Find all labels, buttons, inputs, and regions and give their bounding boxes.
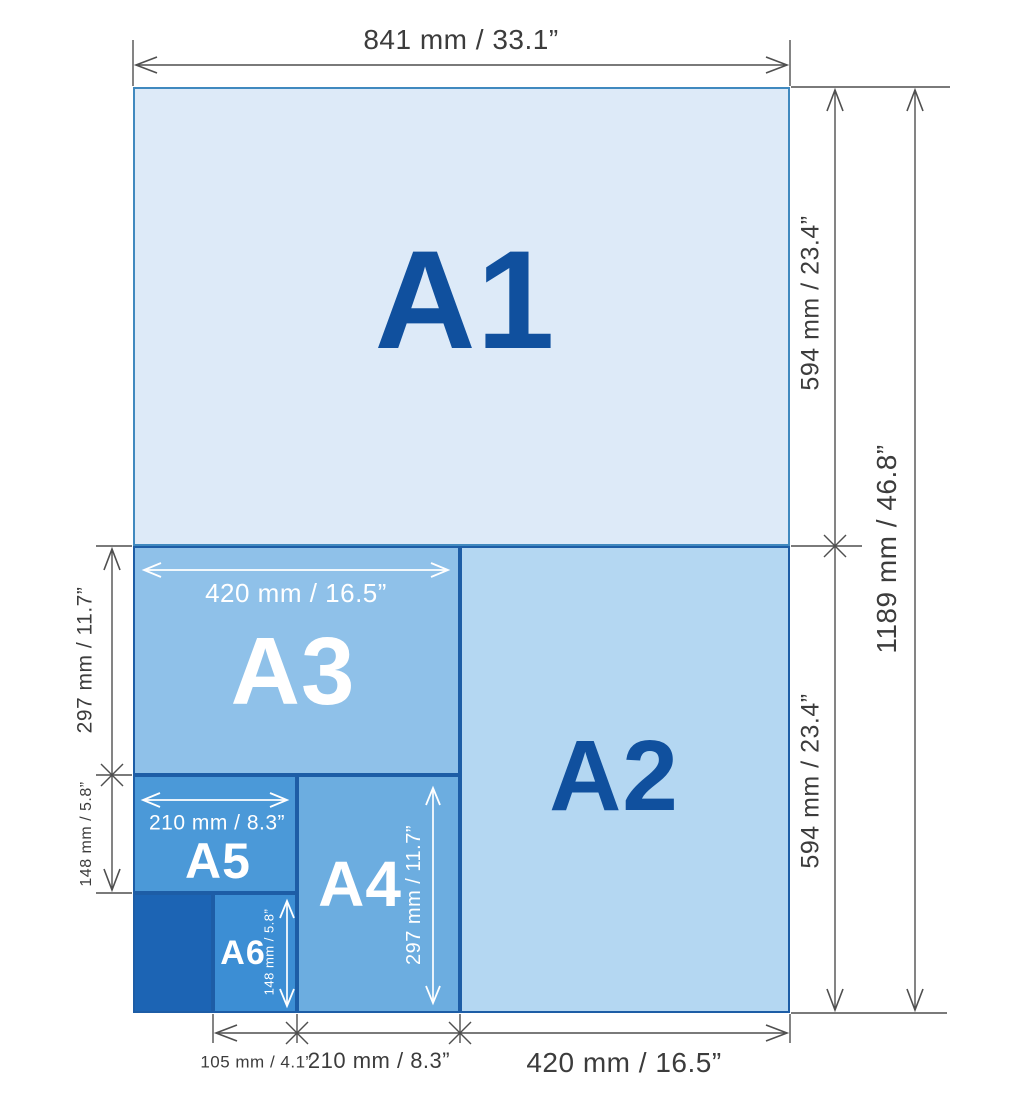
paper-a5-label: A5 — [185, 836, 251, 886]
left-lower-height-label: 148 mm / 5.8” — [79, 781, 95, 886]
bottom-middle-width-label: 210 mm / 8.3” — [308, 1050, 450, 1072]
paper-sizes-diagram: A1 A2 A3 A4 A5 A6 420 mm / 16.5” 210 mm … — [0, 0, 1020, 1098]
paper-a4-label: A4 — [318, 852, 402, 916]
right-lower-height-label: 594 mm / 23.4” — [799, 693, 824, 868]
a5-width-label: 210 mm / 8.3” — [149, 813, 285, 834]
paper-a6-label: A6 — [220, 936, 265, 970]
paper-a1-label: A1 — [375, 230, 556, 370]
paper-small-sizes-square — [133, 893, 213, 1013]
a3-width-label: 420 mm / 16.5” — [205, 580, 387, 606]
right-total-height-label: 1189 mm / 46.8” — [873, 444, 901, 653]
paper-a2-label: A2 — [549, 726, 679, 826]
right-upper-height-label: 594 mm / 23.4” — [799, 215, 824, 390]
top-width-label: 841 mm / 33.1” — [363, 26, 558, 54]
a6-height-label: 148 mm / 5.8” — [263, 909, 276, 996]
left-upper-height-label: 297 mm / 11.7” — [75, 587, 96, 734]
bottom-large-width-label: 420 mm / 16.5” — [526, 1049, 721, 1077]
paper-a3-label: A3 — [231, 624, 356, 720]
bottom-small-width-label: 105 mm / 4.1” — [200, 1054, 311, 1071]
bottom-dimensions — [213, 1014, 790, 1044]
a4-height-label: 297 mm / 11.7” — [404, 825, 424, 965]
left-dimensions — [96, 546, 132, 893]
